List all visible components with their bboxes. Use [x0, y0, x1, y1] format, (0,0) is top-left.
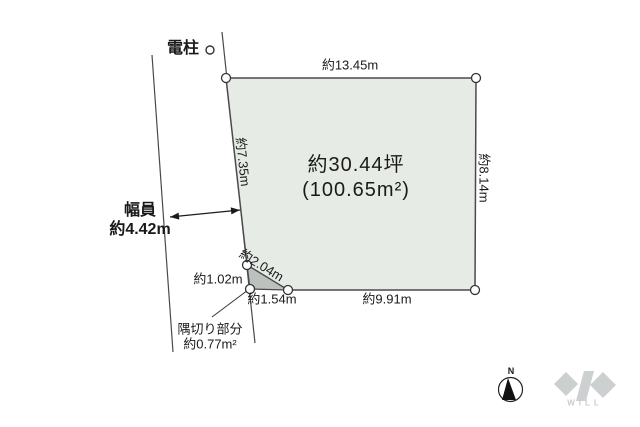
vertex-marker-bottom-right [471, 286, 480, 295]
vertex-marker-top-right [472, 74, 481, 83]
edge-top-dimension: 約13.45m [322, 59, 378, 74]
parcel-area-tsubo: 約30.44坪 [302, 153, 410, 178]
road-width-arrowhead-right [231, 207, 240, 214]
vertex-marker-top-left [222, 74, 231, 83]
corner-cut-left-dimension: 約1.02m [193, 273, 242, 288]
road-width-arrow-line [170, 210, 240, 217]
corner-cut-leader-line [212, 290, 248, 317]
utility-pole-marker [206, 46, 214, 54]
logo-text: WILL [567, 398, 603, 407]
road-width-value: 約4.42m [109, 220, 170, 239]
road-width-title: 幅員 [109, 201, 170, 220]
edge-bottom-dimension: 約9.91m [362, 293, 411, 308]
utility-pole-label: 電柱 [167, 40, 199, 58]
corner-cut-note-title: 隅切り部分 [177, 322, 242, 337]
road-width-label: 幅員 約4.42m [109, 201, 170, 239]
parcel-area-sqm: (100.65m²) [302, 178, 410, 203]
corner-cut-note-area: 約0.77m² [177, 337, 242, 352]
road-width-arrowhead-left [170, 213, 179, 220]
logo-diamond-right-icon [590, 372, 616, 398]
corner-cut-bottom-dimension: 約1.54m [247, 293, 296, 308]
land-plot-diagram: 電柱 約13.45m 約8.14m 約7.35m 約30.44坪 (100.65… [0, 0, 640, 427]
edge-right-dimension: 約8.14m [476, 153, 491, 202]
parcel-area-label: 約30.44坪 (100.65m²) [302, 153, 410, 203]
corner-cut-note: 隅切り部分 約0.77m² [177, 322, 242, 353]
compass-needle-icon [502, 378, 516, 400]
logo-diamond-left-icon [554, 372, 578, 396]
compass-north-label: N [508, 366, 515, 376]
plot-geometry-canvas [0, 0, 640, 427]
